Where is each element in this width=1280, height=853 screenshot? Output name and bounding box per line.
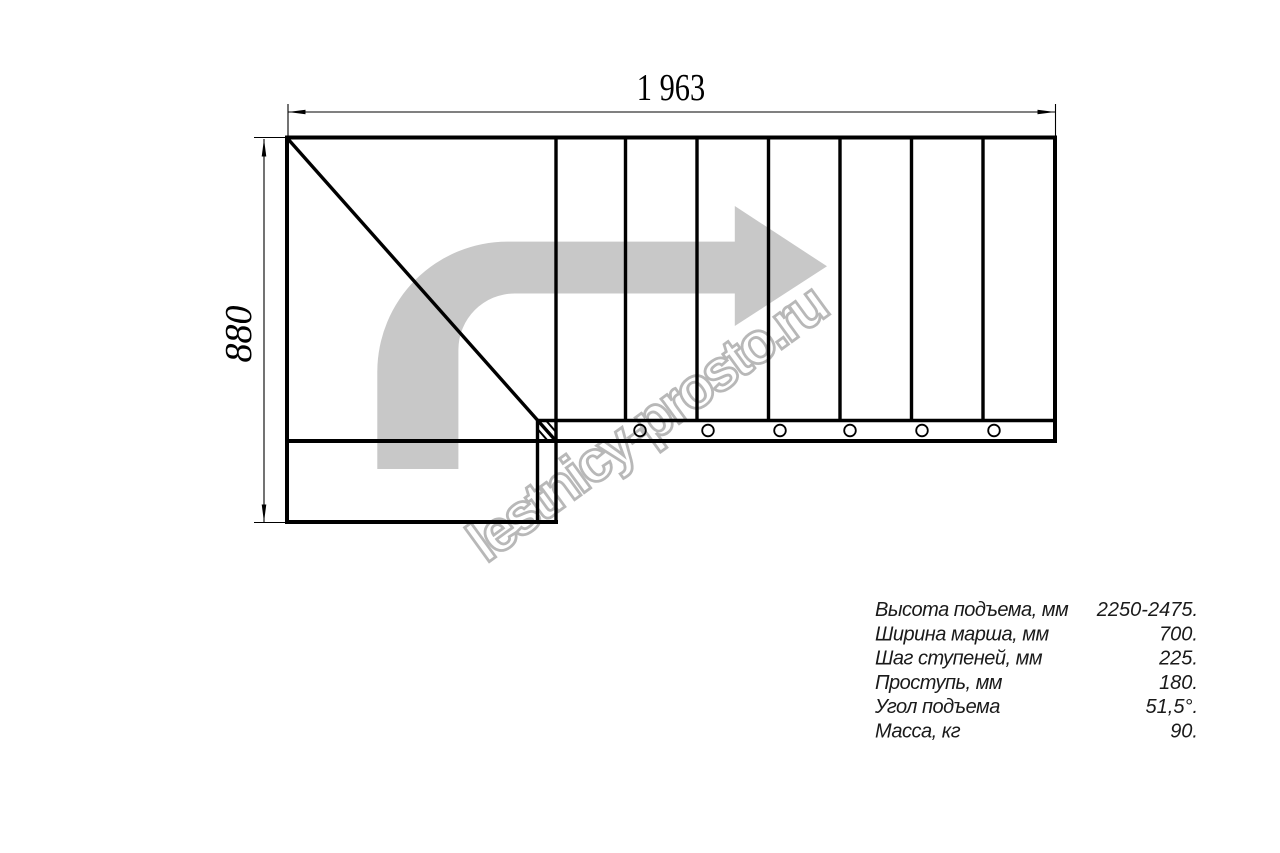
svg-text:Высота подъема, мм: Высота подъема, мм [875,599,1069,621]
svg-text:Ширина марша, мм: Ширина марша, мм [875,623,1049,645]
svg-text:1 963: 1 963 [637,67,705,109]
svg-text:880: 880 [218,306,260,363]
svg-text:180.: 180. [1159,672,1198,694]
svg-text:90.: 90. [1170,721,1198,743]
svg-text:Проступь, мм: Проступь, мм [875,672,1003,694]
svg-text:700.: 700. [1159,623,1198,645]
svg-text:2250-2475.: 2250-2475. [1096,599,1198,621]
svg-text:Угол подъема: Угол подъема [874,696,1000,718]
svg-text:Шаг ступеней, мм: Шаг ступеней, мм [875,648,1043,670]
svg-text:Масса, кг: Масса, кг [875,721,961,743]
svg-text:51,5°.: 51,5°. [1146,696,1198,718]
svg-text:225.: 225. [1158,648,1198,670]
